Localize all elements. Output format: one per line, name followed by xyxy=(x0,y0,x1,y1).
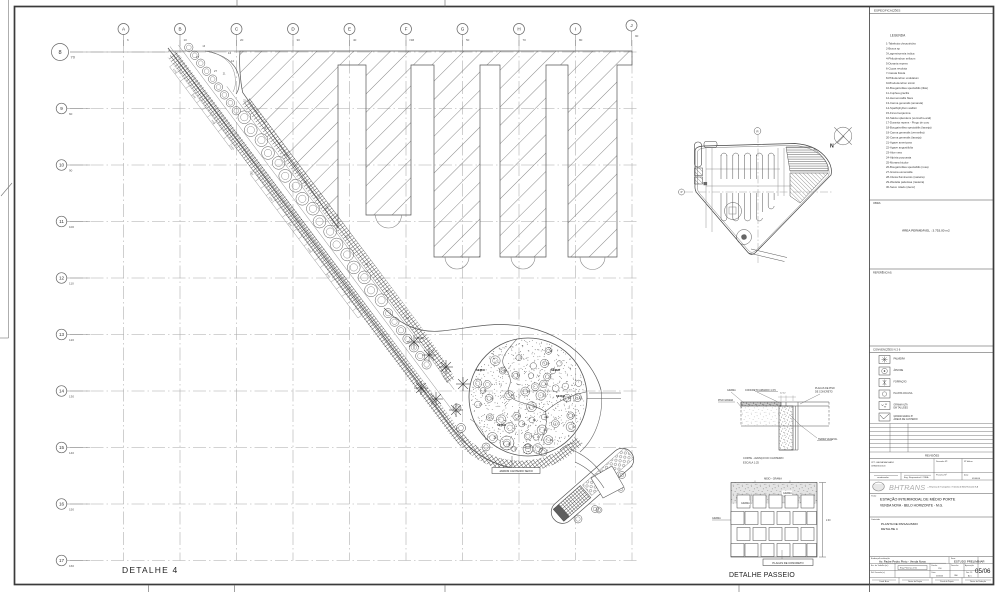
svg-text:JARDIM CANTEIRO SEIXO: JARDIM CANTEIRO SEIXO xyxy=(499,469,533,473)
svg-text:ESTUDO PRELIMINAR: ESTUDO PRELIMINAR xyxy=(954,560,985,564)
svg-text:15-Ficus benjamina: 15-Ficus benjamina xyxy=(886,111,911,115)
svg-text:20-Canna generalis (laranja): 20-Canna generalis (laranja) xyxy=(886,136,922,140)
svg-text:PLANTA DE PAISAGISMO: PLANTA DE PAISAGISMO xyxy=(881,522,918,526)
svg-text:Data:: Data: xyxy=(932,571,937,574)
svg-text:24-Alpinia purpurata: 24-Alpinia purpurata xyxy=(886,155,912,159)
svg-text:ESTAÇÃO INTERMODAL DE MÉDIO PO: ESTAÇÃO INTERMODAL DE MÉDIO PORTE xyxy=(880,497,956,502)
svg-text:4-Philodendron selloum: 4-Philodendron selloum xyxy=(886,56,916,60)
svg-text:CREA 68.431/D: CREA 68.431/D xyxy=(871,465,886,468)
svg-text:23-Aloe vera: 23-Aloe vera xyxy=(886,150,902,154)
svg-text:FORRAÇÃO: FORRAÇÃO xyxy=(894,381,907,384)
svg-text:H: H xyxy=(517,27,520,32)
svg-text:Título:: Título: xyxy=(871,495,877,498)
svg-text:A0 x: A0 x xyxy=(968,574,972,577)
svg-text:EM TALUDES: EM TALUDES xyxy=(894,407,909,410)
svg-text:30: 30 xyxy=(297,38,301,42)
svg-text:70: 70 xyxy=(71,55,76,60)
svg-text:7-Cassia fistula: 7-Cassia fistula xyxy=(886,71,906,75)
svg-text:SEIXO: SEIXO xyxy=(556,394,566,398)
svg-text:SEIXO: SEIXO xyxy=(497,423,507,427)
svg-text:OBRA:: OBRA: xyxy=(873,201,881,205)
svg-text:LEGENDA: LEGENDA xyxy=(890,34,906,38)
svg-text:NM: NM xyxy=(410,38,415,42)
svg-text:10: 10 xyxy=(59,163,65,168)
svg-text:30-Seixo rolado (decor): 30-Seixo rolado (decor) xyxy=(886,185,915,189)
svg-text:25-Moraea bicolor: 25-Moraea bicolor xyxy=(886,160,909,164)
svg-text:PLACAS DE CONCRETO: PLACAS DE CONCRETO xyxy=(772,561,803,565)
svg-text:11-Cuphea gracilis: 11-Cuphea gracilis xyxy=(886,91,910,95)
svg-text:1/50: 1/50 xyxy=(938,568,942,570)
svg-text:DE CONCRETO: DE CONCRETO xyxy=(815,391,833,394)
svg-text:90: 90 xyxy=(69,169,73,173)
svg-text:110: 110 xyxy=(69,282,74,286)
svg-text:8-Philodendron undulatum: 8-Philodendron undulatum xyxy=(886,76,919,80)
svg-text:PISO GRAMA: PISO GRAMA xyxy=(718,399,734,402)
svg-text:B: B xyxy=(178,27,181,32)
svg-text:150: 150 xyxy=(69,508,74,512)
svg-text:28-Clusia fluminensis (rasteir: 28-Clusia fluminensis (rasteira) xyxy=(886,175,925,179)
svg-text:160: 160 xyxy=(69,564,74,568)
svg-text:22-Agave angustifolia: 22-Agave angustifolia xyxy=(886,145,913,149)
svg-text:DETALHE 4: DETALHE 4 xyxy=(122,565,178,575)
svg-text:2-Buxus sp: 2-Buxus sp xyxy=(886,47,900,51)
svg-text:16-Salvia splendens (vermelho-: 16-Salvia splendens (vermelho-anã) xyxy=(886,116,931,120)
svg-text:9: 9 xyxy=(60,106,63,111)
svg-text:GRAMA: GRAMA xyxy=(712,517,721,520)
svg-text:11: 11 xyxy=(59,219,64,224)
svg-text:— Empresa de Transportes e Tr: — Empresa de Transportes e Trânsito de B… xyxy=(927,486,979,489)
svg-text:Fiscal do Projeto: Fiscal do Projeto xyxy=(940,580,953,583)
svg-text:GRAMA ALTA: GRAMA ALTA xyxy=(894,404,909,407)
svg-text:17-Duranta repens - Pingo de o: 17-Duranta repens - Pingo de ouro xyxy=(886,121,930,125)
svg-text:40: 40 xyxy=(353,38,357,42)
svg-text:E: E xyxy=(348,27,351,32)
svg-text:CPT: LAURA MACHADO: CPT: LAURA MACHADO xyxy=(871,461,894,464)
svg-text:21-Agave americana: 21-Agave americana xyxy=(886,141,912,145)
svg-text:130: 130 xyxy=(69,395,74,399)
svg-text:SEIXO: SEIXO xyxy=(551,368,561,372)
svg-text:60: 60 xyxy=(69,112,73,116)
svg-text:GRAMA: GRAMA xyxy=(783,492,792,495)
svg-text:10-Bougainvillea spectabilis (: 10-Bougainvillea spectabilis (lilás) xyxy=(886,86,928,90)
svg-text:10: 10 xyxy=(184,38,188,42)
svg-text:Aprovação:: Aprovação: xyxy=(965,564,975,567)
svg-text:8: 8 xyxy=(58,50,61,56)
svg-text:GRAMA: GRAMA xyxy=(727,389,736,392)
svg-text:I: I xyxy=(575,27,576,32)
svg-text:N: N xyxy=(830,144,834,150)
svg-text:SEIXO: SEIXO xyxy=(476,368,486,372)
svg-text:GRAMA: GRAMA xyxy=(741,502,750,505)
svg-text:120: 120 xyxy=(69,338,74,342)
svg-text:12: 12 xyxy=(59,276,65,281)
svg-text:Desenho:: Desenho: xyxy=(951,565,959,567)
svg-text:5-Duranta repens: 5-Duranta repens xyxy=(886,61,908,65)
svg-text:GRAMA GERAL P/: GRAMA GERAL P/ xyxy=(894,415,914,418)
svg-text:ÁRVORE: ÁRVORE xyxy=(894,369,904,372)
svg-text:50: 50 xyxy=(466,38,470,42)
svg-text:1-Tabebuia chrysotricha: 1-Tabebuia chrysotricha xyxy=(886,42,916,46)
svg-text:ÁREAS DE CANTEIRO: ÁREAS DE CANTEIRO xyxy=(894,418,918,421)
svg-text:G: G xyxy=(461,27,465,32)
svg-text:12-Hemerocallis flava: 12-Hemerocallis flava xyxy=(886,96,913,100)
svg-text:Eng. Florença 1:50: Eng. Florença 1:50 xyxy=(900,568,918,570)
svg-text:ESPECIFICAÇÕES: ESPECIFICAÇÕES xyxy=(874,8,900,13)
svg-text:14-Spathiphyllum wallisii: 14-Spathiphyllum wallisii xyxy=(886,106,917,110)
svg-text:26-Bougainvillea spectabilis (: 26-Bougainvillea spectabilis (rosa) xyxy=(886,165,929,169)
svg-text:Des. Nº:: Des. Nº: xyxy=(966,571,973,574)
svg-text:Gestor do Projeto: Gestor do Projeto xyxy=(908,580,922,583)
svg-text:Conteúdo:: Conteúdo: xyxy=(871,518,881,521)
svg-text:data:: data: xyxy=(964,474,969,477)
svg-text:100: 100 xyxy=(69,225,74,229)
svg-text:15: 15 xyxy=(59,445,65,450)
svg-text:12 12: 12 12 xyxy=(780,393,786,395)
svg-text:ÁREA PERMEÁVEL : 3.753,00 m2: ÁREA PERMEÁVEL : 3.753,00 m2 xyxy=(902,229,950,233)
svg-text:Prancha Nº:: Prancha Nº: xyxy=(936,474,948,477)
svg-text:CONVENÇÕES N 2 6: CONVENÇÕES N 2 6 xyxy=(873,347,901,352)
svg-text:29-Wedelia paludosa (rasteira): 29-Wedelia paludosa (rasteira) xyxy=(886,180,924,184)
svg-text:ESCALA 1:25: ESCALA 1:25 xyxy=(743,461,759,465)
svg-text:Diretor de Produção: Diretor de Produção xyxy=(970,580,986,583)
svg-text:F: F xyxy=(405,27,408,32)
svg-text:27-Grama esmeralda: 27-Grama esmeralda xyxy=(886,170,913,174)
svg-text:GRAMA: GRAMA xyxy=(415,336,425,340)
svg-text:Desenho Nº:: Desenho Nº: xyxy=(936,460,948,463)
svg-text:05/06: 05/06 xyxy=(975,568,991,575)
svg-text:MEIO - GRAMA: MEIO - GRAMA xyxy=(764,478,782,481)
svg-text:P: P xyxy=(681,190,683,194)
svg-text:140: 140 xyxy=(69,451,74,455)
svg-text:REVISÕES: REVISÕES xyxy=(925,453,939,458)
svg-text:20: 20 xyxy=(240,38,244,42)
svg-text:CORTE - AVANÇO DO CANTEIRO: CORTE - AVANÇO DO CANTEIRO xyxy=(743,456,784,460)
svg-text:Escala:: Escala: xyxy=(932,565,938,567)
svg-text:VENDA NOVA - BELO HORIZONTE: VENDA NOVA - BELO HORIZONTE - M.G. xyxy=(880,504,943,508)
svg-text:13: 13 xyxy=(59,332,65,337)
svg-text:Nº folhas:: Nº folhas: xyxy=(964,460,973,463)
svg-text:17: 17 xyxy=(59,558,65,563)
svg-text:PLANTA COLUNA: PLANTA COLUNA xyxy=(894,392,913,395)
svg-text:14: 14 xyxy=(59,389,65,394)
svg-text:Eng. Responsável / CREA: Eng. Responsável / CREA xyxy=(904,476,929,479)
svg-text:Ref. Desenho (s):: Ref. Desenho (s): xyxy=(871,572,886,574)
svg-text:DETALHE 4: DETALHE 4 xyxy=(881,527,898,531)
svg-text:Av. Padre Pedro Pinto - Venda: Av. Padre Pedro Pinto - Venda Nova xyxy=(879,560,926,564)
svg-text:6-Cycas revoluta: 6-Cycas revoluta xyxy=(886,66,907,70)
svg-text:3-Lagerstroemia indica: 3-Lagerstroemia indica xyxy=(886,51,915,55)
svg-text:9-Rhododendron simsii: 9-Rhododendron simsii xyxy=(886,81,915,85)
svg-text:13-Canna generalis (amarela): 13-Canna generalis (amarela) xyxy=(886,101,923,105)
svg-text:80: 80 xyxy=(579,38,583,42)
svg-text:70: 70 xyxy=(523,38,527,42)
svg-text:16: 16 xyxy=(59,502,65,507)
svg-text:18-Bougainvillea spectabilis (: 18-Bougainvillea spectabilis (laranja) xyxy=(886,126,932,130)
svg-text:BHTRANS: BHTRANS xyxy=(889,483,925,492)
svg-text:90: 90 xyxy=(635,34,639,38)
svg-text:05/06/06: 05/06/06 xyxy=(936,575,943,577)
svg-text:Coord. Área: Coord. Área xyxy=(879,580,889,583)
svg-text:Esc. de Trabalho (m²):: Esc. de Trabalho (m²): xyxy=(871,564,889,567)
svg-text:PALMEIRA: PALMEIRA xyxy=(894,358,906,361)
svg-text:2.00: 2.00 xyxy=(826,520,831,522)
svg-text:19-Canna generalis (vermelha): 19-Canna generalis (vermelha) xyxy=(886,131,925,135)
svg-text:DETALHE PASSEIO: DETALHE PASSEIO xyxy=(729,572,795,579)
svg-text:coordenador: coordenador xyxy=(877,476,889,479)
svg-text:05/06/06: 05/06/06 xyxy=(972,478,981,480)
svg-text:J: J xyxy=(630,23,632,28)
